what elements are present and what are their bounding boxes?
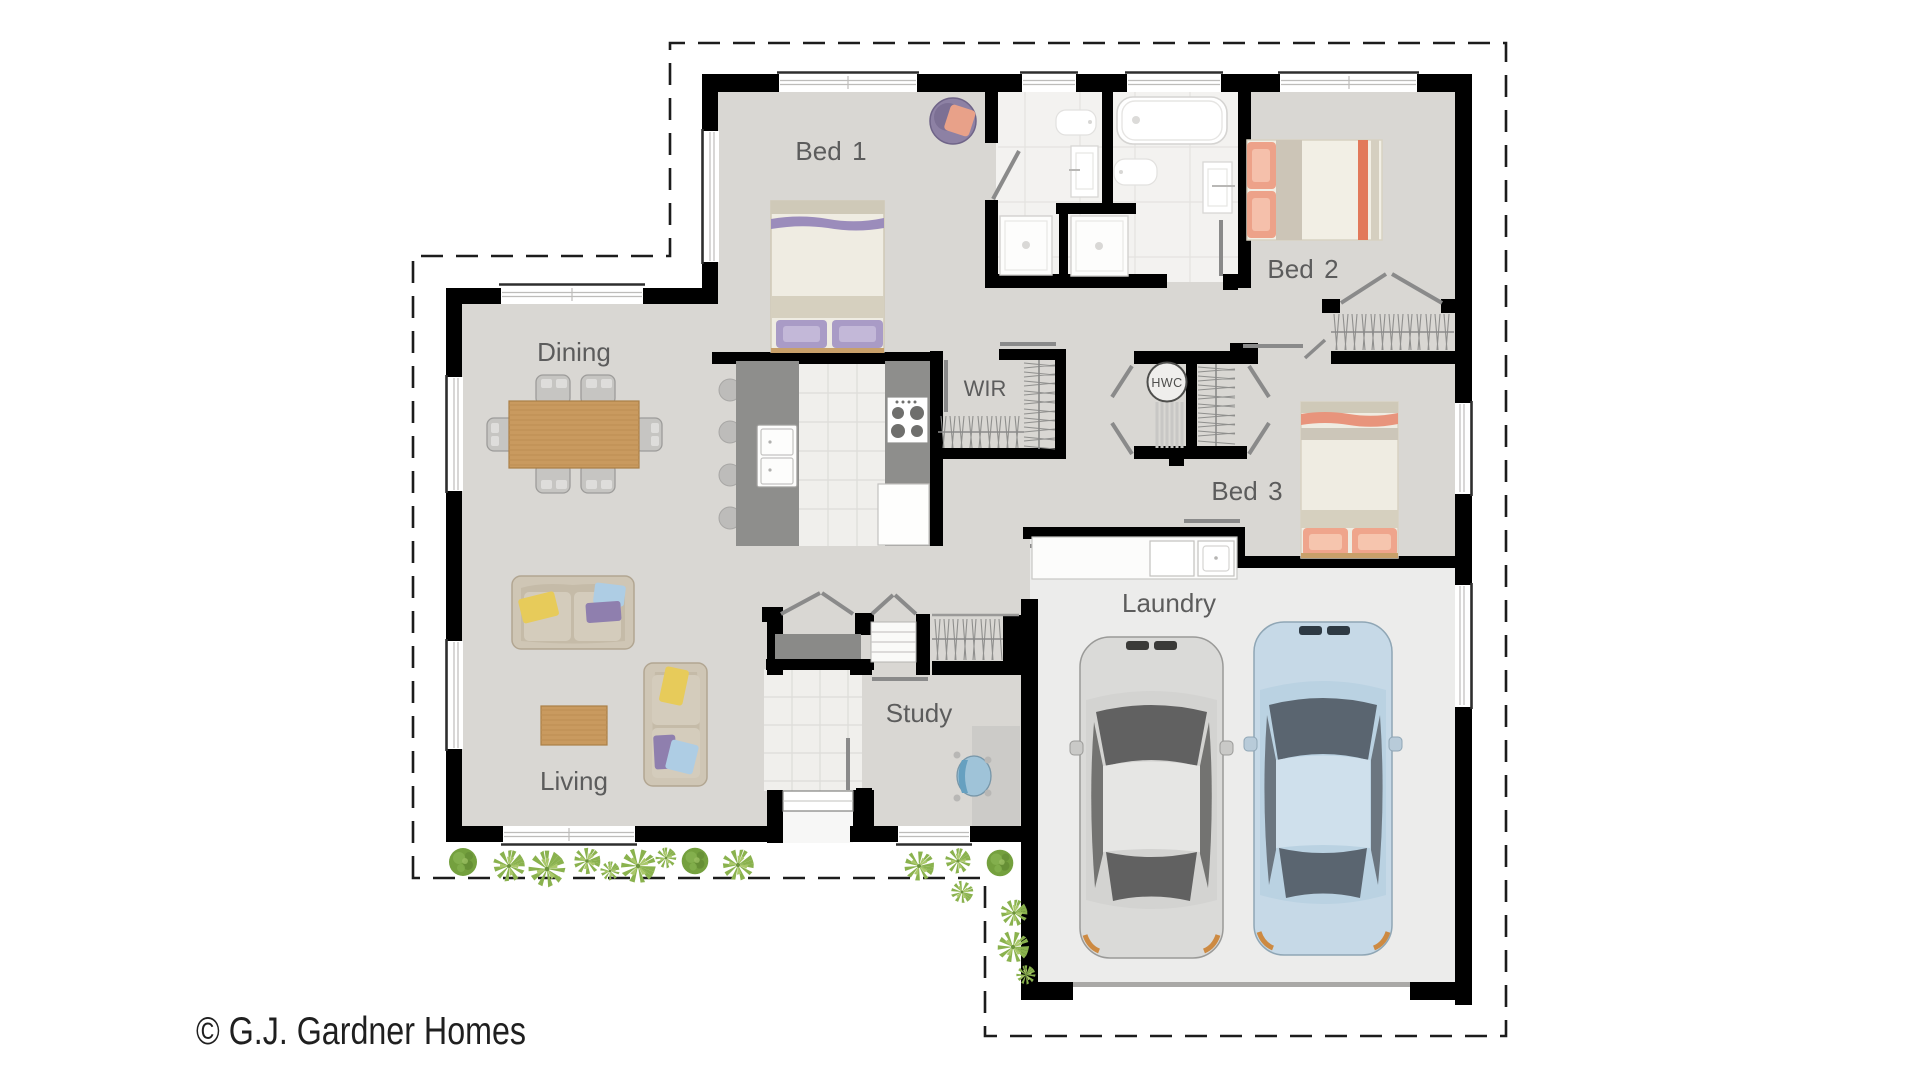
svg-text:WIR: WIR [964, 376, 1007, 401]
svg-text:© G.J. Gardner Homes: © G.J. Gardner Homes [196, 1010, 526, 1053]
svg-text:Bed 2: Bed 2 [1267, 254, 1338, 284]
svg-text:Bed 1: Bed 1 [795, 136, 866, 166]
svg-text:Laundry: Laundry [1122, 588, 1216, 618]
svg-text:Bed 3: Bed 3 [1211, 476, 1282, 506]
svg-text:Study: Study [886, 698, 953, 728]
svg-text:HWC: HWC [1151, 376, 1182, 390]
svg-text:Living: Living [540, 766, 608, 796]
svg-text:Dining: Dining [537, 337, 611, 367]
